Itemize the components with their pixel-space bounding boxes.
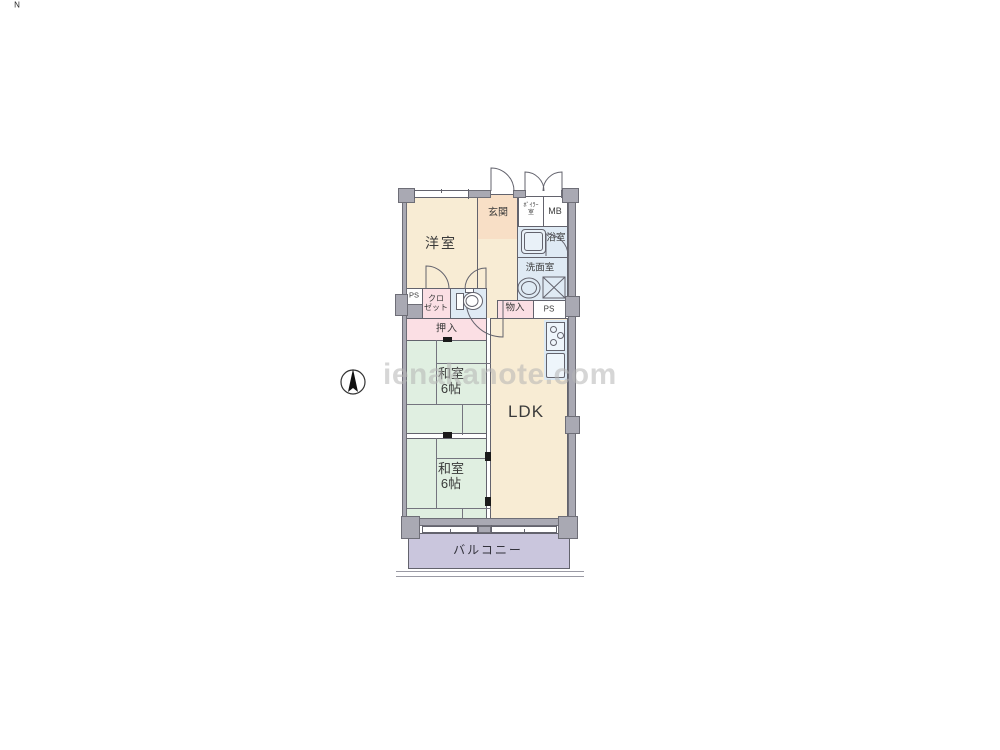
label-closet-line2: ゼット xyxy=(424,303,448,312)
tatami-line xyxy=(404,508,491,509)
sliding-door-marker xyxy=(485,452,491,461)
label-ps-right: PS xyxy=(544,304,555,313)
label-boiler: ﾎﾞｲﾗｰ 室 xyxy=(523,203,538,217)
sliding-door-marker xyxy=(443,432,452,438)
floorplan-canvas: N 洋室 玄関 ﾎﾞｲﾗｰ 室 MB 浴室 洗面室 PS クロ ゼット 物入 P… xyxy=(0,0,1000,750)
label-western-room: 洋室 xyxy=(425,235,457,251)
watermark: ienakanote.com xyxy=(383,358,617,392)
wall-top xyxy=(468,190,491,198)
label-closet-line1: クロ xyxy=(424,294,448,303)
tatami-line xyxy=(404,404,491,405)
label-entrance: 玄関 xyxy=(488,207,508,219)
sliding-door-marker xyxy=(485,497,491,506)
window-tick xyxy=(491,525,492,534)
label-futon-closet: 押入 xyxy=(436,323,458,335)
door-arc-entrance xyxy=(491,168,514,191)
door-arc-meter-right xyxy=(543,172,562,191)
label-balcony: バルコニー xyxy=(453,544,523,558)
window-tick xyxy=(450,529,451,534)
pillar-bottom-right xyxy=(558,516,578,539)
label-ps-left: PS xyxy=(409,292,419,301)
label-meter-box: MB xyxy=(548,206,562,216)
window-tick xyxy=(556,525,557,534)
wall-top xyxy=(513,190,526,198)
door-arc-meter-left xyxy=(525,172,544,191)
bathtub-inner xyxy=(524,232,543,251)
label-closet: クロ ゼット xyxy=(424,294,448,312)
balcony-edge-line xyxy=(396,571,584,572)
compass-north-label: N xyxy=(14,0,20,9)
pillar-mid-right-1 xyxy=(565,296,580,317)
pillar-top-left xyxy=(398,188,415,203)
window-pier xyxy=(478,526,491,533)
pillar-top-right xyxy=(562,188,579,203)
window-tick xyxy=(477,525,478,534)
sliding-door-marker xyxy=(443,337,452,342)
balcony-edge-line xyxy=(396,576,584,577)
toilet-paper-icon xyxy=(465,288,474,293)
label-boiler-line2: 室 xyxy=(523,210,538,217)
label-storage: 物入 xyxy=(505,304,524,315)
label-japanese-2-name: 和室 xyxy=(438,462,464,477)
stove-burner xyxy=(550,326,557,333)
tatami-line xyxy=(436,458,491,459)
label-japanese-room-2: 和室 6帖 xyxy=(438,462,464,492)
window-tick xyxy=(468,189,469,199)
label-bathroom: 浴室 xyxy=(546,234,565,245)
stove-icon xyxy=(546,322,565,351)
bathtub-icon xyxy=(521,229,546,254)
toilet-tank-icon xyxy=(456,293,464,310)
stove-burner xyxy=(557,332,564,339)
tatami-line xyxy=(462,404,463,435)
stove-burner xyxy=(550,339,557,346)
window-tick xyxy=(524,529,525,534)
pillar-mid-left xyxy=(395,294,408,316)
compass xyxy=(336,357,370,399)
window-tick xyxy=(441,189,442,193)
window-tick xyxy=(414,189,415,199)
tatami-line xyxy=(436,438,437,508)
window-tick xyxy=(422,525,423,534)
label-washroom: 洗面室 xyxy=(526,264,555,275)
label-japanese-2-size: 6帖 xyxy=(438,477,464,492)
pillar-mid-right-2 xyxy=(565,416,580,434)
wall-bottom xyxy=(419,518,560,526)
pillar-bottom-left xyxy=(401,516,420,539)
label-ldk: LDK xyxy=(508,402,544,422)
